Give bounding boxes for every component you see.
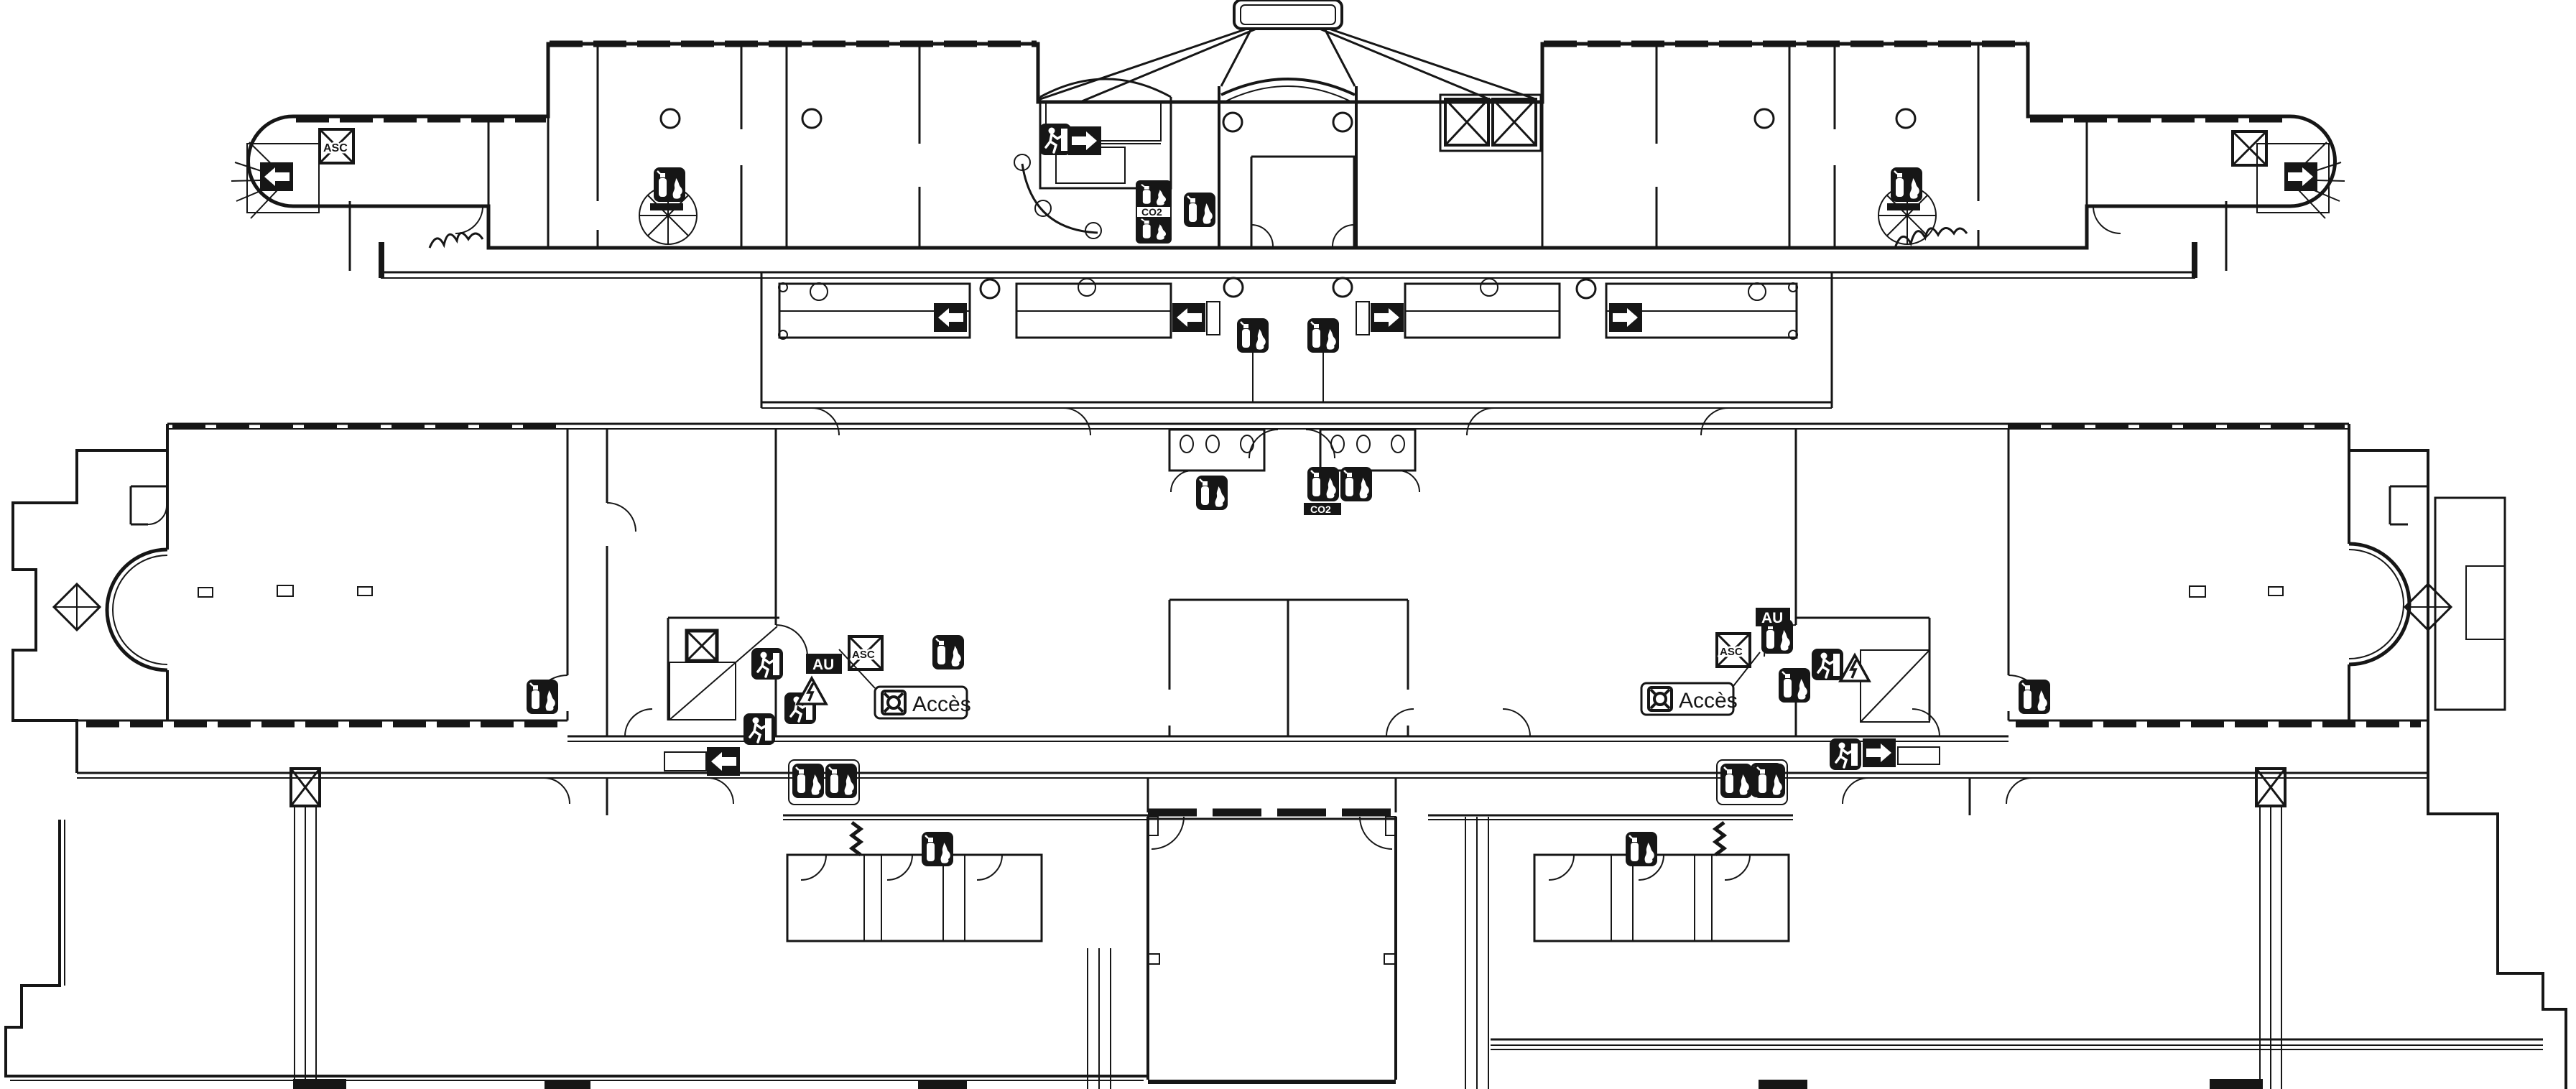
room-cluster-left (787, 760, 1042, 941)
exit-direction-arrow-icon (1068, 126, 1101, 155)
entrance-lobby (1219, 79, 1356, 248)
grand-room-right (2009, 430, 2428, 724)
floor-plan-page: ASC (0, 0, 2576, 1089)
co2-label: CO2 (1310, 504, 1331, 515)
column-diamond-icon (2405, 584, 2451, 630)
exit-running-person-icon (1039, 124, 1071, 155)
fire-extinguisher-icon (654, 167, 685, 202)
column-circle-icon (1224, 278, 1243, 297)
column-circle-icon (661, 109, 680, 128)
braced-column-icon (2256, 769, 2285, 1089)
cut-mark (918, 1080, 967, 1089)
fire-extinguisher-icon (932, 635, 964, 669)
column-circle-icon (1896, 109, 1915, 128)
braced-column-icon (291, 769, 320, 1089)
exit-direction-arrow-icon (1863, 738, 1896, 767)
exit-direction-arrow-icon (1609, 303, 1642, 332)
electrical-danger-triangle-icon (1840, 655, 1869, 681)
column-circle-icon (1577, 279, 1595, 298)
fire-extinguisher-icon (1184, 193, 1215, 227)
access-marker-icon (882, 691, 905, 714)
exit-direction-arrow-icon (707, 747, 740, 776)
cut-mark (545, 1080, 590, 1089)
fire-extinguisher-icon (825, 764, 857, 798)
exit-direction-arrow-icon (934, 303, 967, 332)
fire-extinguisher-station (789, 760, 859, 805)
elevator-label: ASC (323, 142, 348, 154)
outer-wall-right (2349, 424, 2566, 1089)
exit-running-person-icon (751, 648, 783, 680)
expansion-joint-zigzag-icon (430, 233, 483, 248)
exit-running-person-icon (1830, 738, 1861, 770)
long-stair-run (1606, 283, 1797, 339)
exit-direction-arrow-icon (2284, 162, 2317, 191)
elevator-label: ASC (852, 649, 875, 661)
cut-mark (2210, 1079, 2263, 1089)
bottom-section (6, 760, 2543, 1089)
fire-extinguisher-icon (2019, 680, 2050, 714)
fire-extinguisher-icon (1138, 182, 1169, 208)
access-label: Accès (1679, 689, 1738, 713)
fire-extinguisher-icon (922, 832, 953, 866)
central-hall-room (1148, 812, 1396, 1082)
exit-direction-arrow-icon (1172, 303, 1205, 332)
electrical-danger-triangle-icon (797, 678, 826, 704)
expansion-joint-zigzag-icon (1715, 822, 1724, 855)
exit-running-person-icon (743, 713, 775, 745)
cut-mark (293, 1079, 346, 1089)
fire-extinguisher-icon (1720, 764, 1752, 798)
annex-room (2435, 498, 2505, 710)
cut-mark (1759, 1080, 1807, 1089)
fire-extinguisher-icon (1340, 467, 1372, 501)
column-circle-icon (1755, 109, 1774, 128)
fire-extinguisher-icon (1307, 467, 1339, 501)
main-band: CO2 AU ASC (13, 424, 2566, 1089)
fire-extinguisher-icon (1138, 216, 1169, 242)
elevator-label: ASC (1720, 646, 1743, 658)
long-stair-run (1356, 279, 1560, 338)
column-circle-icon (1085, 223, 1101, 238)
fire-extinguisher-icon (792, 764, 824, 798)
column-circle-icon (1223, 113, 1242, 131)
co2-label: CO2 (1141, 206, 1162, 218)
fire-extinguisher-icon (1891, 167, 1922, 202)
grand-room-left (77, 430, 567, 724)
column-circle-icon (1333, 278, 1352, 297)
top-wing: ASC (231, 0, 2345, 248)
column-circle-icon (802, 109, 821, 128)
fire-extinguisher-icon (1237, 318, 1269, 353)
exit-direction-arrow-icon (1371, 303, 1404, 332)
column-diamond-icon (54, 584, 100, 630)
fire-extinguisher-icon (1779, 668, 1810, 703)
partition-walls (488, 44, 2087, 248)
access-marker-icon (1649, 687, 1672, 710)
room-cluster-right (1534, 760, 1789, 941)
fire-extinguisher-icon (1626, 832, 1657, 866)
outer-wall-bottom-left (6, 820, 1148, 1076)
long-stair-run (1016, 279, 1220, 338)
exit-running-person-icon (1812, 649, 1843, 680)
access-label: Accès (912, 692, 971, 716)
column-circle-icon (1333, 113, 1352, 131)
column-circle-icon (1035, 200, 1051, 216)
fire-extinguisher-icon (1753, 764, 1785, 798)
stair-link-band (350, 201, 2226, 435)
exit-direction-arrow-icon (260, 162, 293, 191)
fire-extinguisher-icon (1196, 476, 1228, 510)
access-plate-right: Accès (1641, 652, 1760, 715)
fire-extinguisher-icon (527, 680, 558, 714)
column-circle-icon (981, 279, 999, 298)
floor-plan-svg: ASC (0, 0, 2576, 1089)
call-point-label: AU (1761, 610, 1783, 626)
co2-extinguisher-station: CO2 (1304, 467, 1372, 515)
expansion-joint-zigzag-icon (852, 822, 861, 855)
call-point-label: AU (812, 657, 834, 673)
co2-extinguisher-station: CO2 (1136, 180, 1172, 244)
fire-extinguisher-icon (1307, 318, 1339, 353)
long-stair-run (779, 283, 970, 339)
